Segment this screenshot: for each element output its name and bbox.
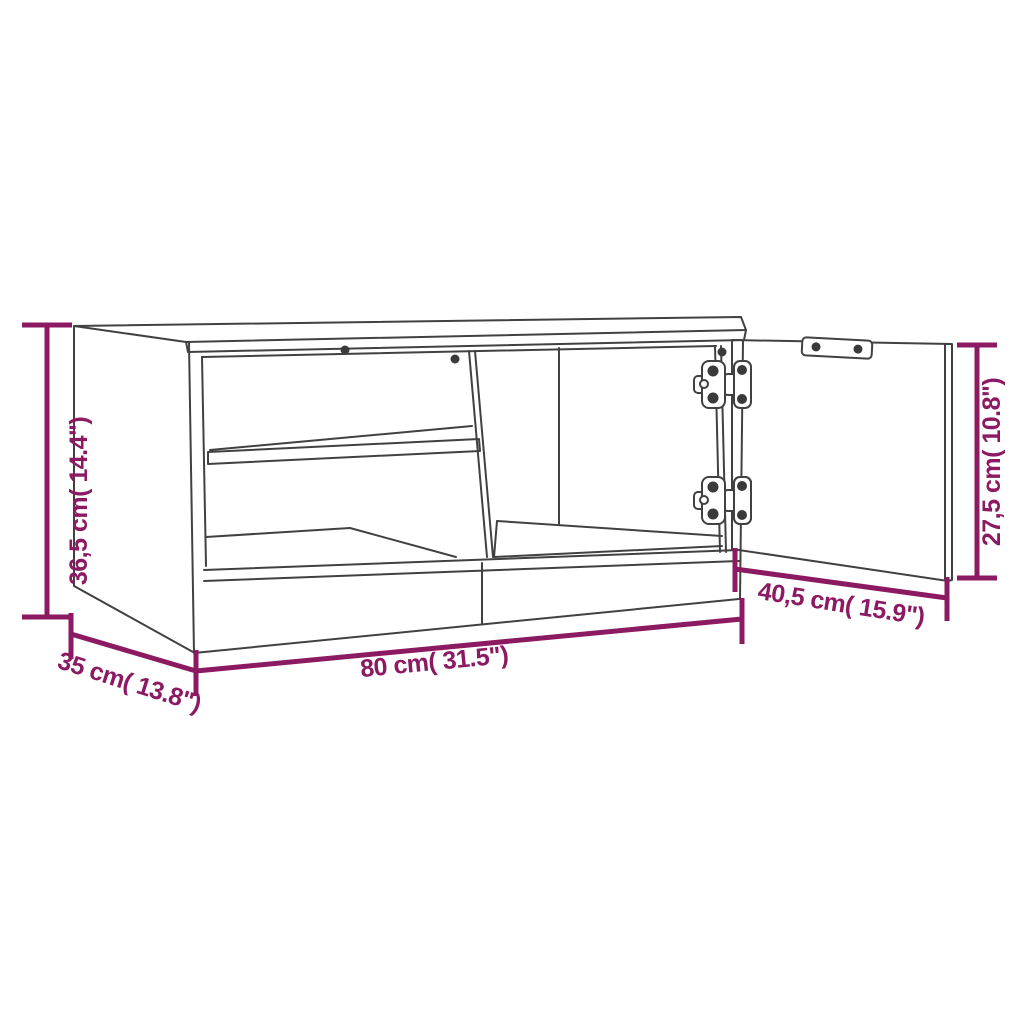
interior-top-edge [202,346,716,357]
dimension-depth-label: 35 cm( 13.8") [54,647,204,718]
left-shelf [208,426,480,464]
interior-left-edge [202,357,206,566]
screw-icon [341,346,350,355]
door-top-plate [802,337,873,359]
product-diagram-canvas: 36,5 cm( 14.4") 35 cm( 13.8") 80 cm( 31.… [0,0,1024,1024]
screw-icon [718,348,727,357]
hinge-top [694,361,751,408]
center-divider [469,351,493,557]
tv-cabinet-dimension-diagram: 36,5 cm( 14.4") 35 cm( 13.8") 80 cm( 31.… [0,0,1024,1024]
open-door [732,340,952,581]
dimension-height-label: 36,5 cm( 14.4") [65,417,93,586]
bottom-rail [194,550,739,653]
dimension-width-label: 80 cm( 31.5") [359,641,510,683]
left-compartment-floor [206,528,456,557]
top-panel [74,317,746,342]
screw-icon [451,355,460,364]
dimension-door-height-label: 27,5 cm( 10.8") [978,378,1006,547]
hinge-bottom [694,477,751,524]
